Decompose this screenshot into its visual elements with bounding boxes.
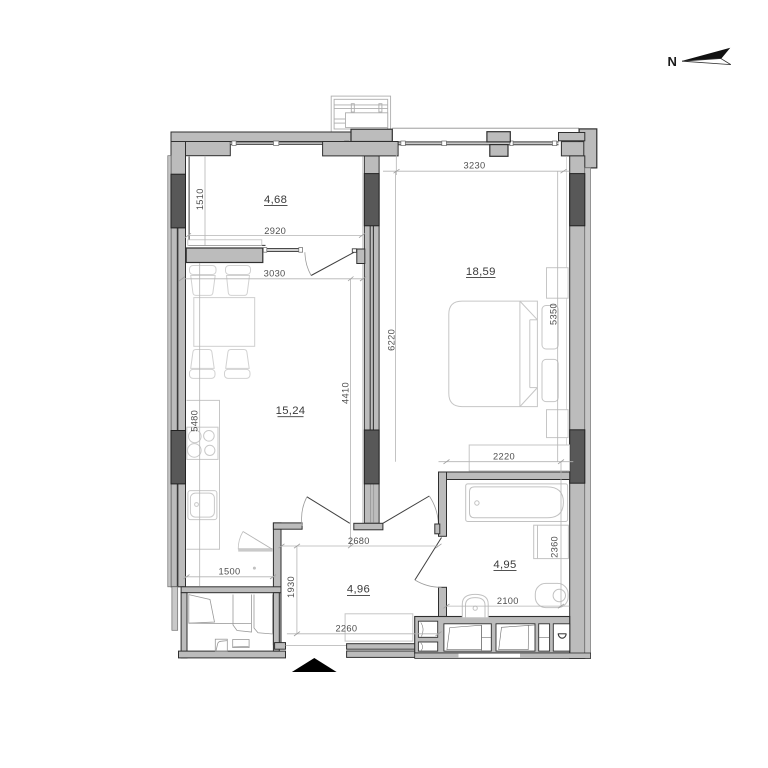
svg-text:1510: 1510 [195, 188, 205, 210]
svg-text:2680: 2680 [348, 536, 370, 546]
svg-text:2920: 2920 [264, 226, 286, 236]
svg-text:4,95: 4,95 [493, 559, 516, 571]
svg-text:1930: 1930 [286, 576, 296, 598]
svg-text:4,68: 4,68 [264, 194, 287, 206]
svg-text:5350: 5350 [549, 303, 559, 325]
svg-text:3230: 3230 [464, 161, 486, 171]
svg-text:N: N [668, 54, 677, 69]
svg-text:2220: 2220 [493, 452, 515, 462]
svg-text:15,24: 15,24 [276, 405, 306, 417]
svg-text:18,59: 18,59 [466, 266, 496, 278]
svg-text:6220: 6220 [386, 329, 396, 351]
svg-text:2100: 2100 [497, 596, 519, 606]
svg-text:5480: 5480 [189, 410, 199, 432]
svg-text:4,96: 4,96 [347, 584, 370, 596]
svg-text:2360: 2360 [550, 536, 560, 558]
svg-text:4410: 4410 [341, 382, 351, 404]
svg-text:1500: 1500 [219, 566, 241, 576]
svg-text:2260: 2260 [335, 624, 357, 634]
svg-text:3030: 3030 [264, 268, 286, 278]
